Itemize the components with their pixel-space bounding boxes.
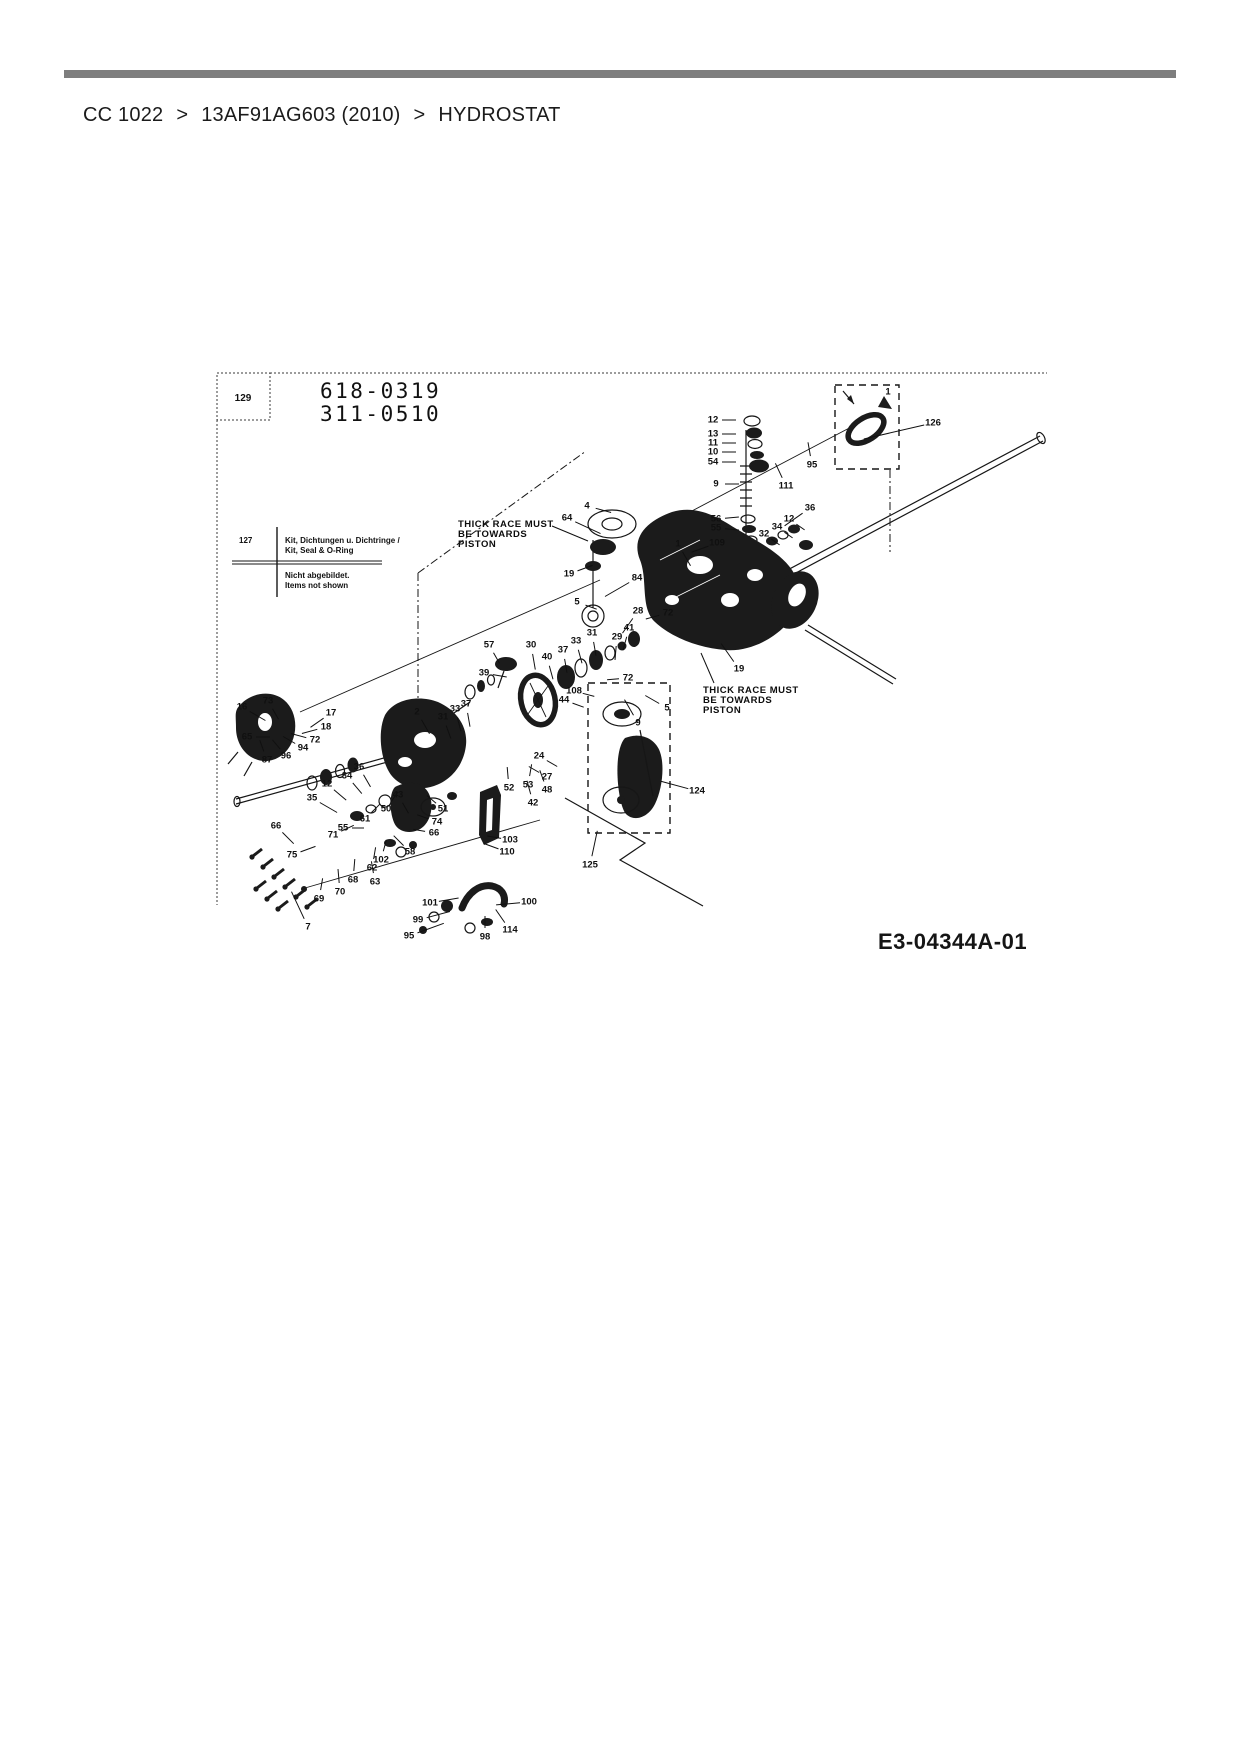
part-label-98: 98 xyxy=(480,932,491,943)
part-label-72: 72 xyxy=(623,673,634,684)
bolt-head xyxy=(253,886,258,891)
part-label-43: 43 xyxy=(393,790,404,801)
leader-line-44 xyxy=(573,703,584,707)
part-label-30: 30 xyxy=(526,640,537,651)
leader-line-39 xyxy=(493,675,507,677)
part-label-17: 17 xyxy=(326,708,337,719)
part-label-61: 61 xyxy=(360,814,371,825)
leader-line-37 xyxy=(468,713,470,727)
kit-note-id: 127 xyxy=(239,536,253,545)
part-label-48: 48 xyxy=(542,785,553,796)
bolt-head xyxy=(249,854,254,859)
part-label-2: 2 xyxy=(414,707,419,718)
part-label-52: 52 xyxy=(504,783,515,794)
part-label-110: 110 xyxy=(499,847,514,858)
part-label-44: 44 xyxy=(559,695,570,706)
part-label-58: 58 xyxy=(405,847,416,858)
part-label-101: 101 xyxy=(422,898,439,909)
kit-note: 127 Kit, Dichtungen u. Dichtringe / Kit,… xyxy=(232,527,400,597)
part-label-37: 37 xyxy=(461,699,472,710)
part-label-12: 12 xyxy=(708,415,719,426)
drawing-code: E3-04344A-01 xyxy=(878,929,1027,954)
leader-line-75 xyxy=(301,846,316,852)
bolt-head xyxy=(260,864,265,869)
part-label-5: 5 xyxy=(574,597,580,608)
exploded-parts-diagram: 129 618-0319 311-0510 127 Kit, Dichtunge… xyxy=(0,0,1240,1754)
bolt-head xyxy=(271,874,276,879)
part-label-94: 94 xyxy=(298,743,309,754)
part-label-33: 33 xyxy=(450,704,461,715)
leader-line-110 xyxy=(484,843,499,849)
exploded-view-art xyxy=(228,391,1047,934)
part-label-16: 16 xyxy=(237,702,248,713)
part-label-28: 28 xyxy=(633,606,644,617)
part-label-96: 96 xyxy=(281,751,292,762)
leader-line-24 xyxy=(547,761,557,767)
part-label-95: 95 xyxy=(404,931,415,942)
leader-line-124 xyxy=(661,781,688,788)
part-label-24: 24 xyxy=(534,751,545,762)
bolt-head xyxy=(275,906,280,911)
part-label-103: 103 xyxy=(502,835,518,846)
part-label-34: 34 xyxy=(342,771,353,782)
leader-line-56 xyxy=(725,517,739,518)
part-label-7: 7 xyxy=(305,922,310,933)
bolt-icon xyxy=(279,901,288,908)
part-number-line-1: 618-0319 xyxy=(320,379,441,403)
part-label-32: 32 xyxy=(759,529,770,540)
bolt-head xyxy=(264,896,269,901)
part-label-51: 51 xyxy=(438,804,449,815)
part-label-84: 84 xyxy=(632,573,643,584)
part-label-100: 100 xyxy=(521,897,537,908)
bolt-icon xyxy=(275,869,284,876)
leader-line-70 xyxy=(338,869,339,883)
part-label-124: 124 xyxy=(689,786,706,797)
part-label-63: 63 xyxy=(370,877,381,888)
part-label-111: 111 xyxy=(779,481,795,492)
part-label-54: 54 xyxy=(708,457,719,468)
thick-race-annotation-2: THICK RACE MUST BE TOWARDS PISTON xyxy=(701,653,802,716)
part-label-39: 39 xyxy=(479,668,490,679)
part-label-75: 75 xyxy=(287,850,298,861)
bolt-icon xyxy=(268,891,277,898)
bolt-icon xyxy=(257,881,266,888)
leader-line-68 xyxy=(354,859,355,871)
diagram-part-numbers: 618-0319 311-0510 xyxy=(320,379,441,426)
leader-line-100 xyxy=(496,903,520,905)
leader-line-66 xyxy=(282,832,293,843)
part-label-9: 9 xyxy=(635,718,640,729)
part-label-72: 72 xyxy=(663,608,674,619)
part-label-41: 41 xyxy=(624,623,635,634)
svg-text:THICK RACE MUST BE TOWAR: THICK RACE MUST BE TOWARDS PISTON xyxy=(703,685,802,716)
part-label-69: 69 xyxy=(314,894,325,905)
part-label-12: 12 xyxy=(784,514,795,525)
part-label-66: 66 xyxy=(429,828,440,839)
part-label-65: 65 xyxy=(242,732,253,743)
leader-line-125 xyxy=(592,831,597,856)
part-label-18: 18 xyxy=(321,722,332,733)
leader-line-33 xyxy=(578,650,582,664)
leader-line-12 xyxy=(334,790,346,800)
part-label-19: 19 xyxy=(564,569,575,580)
bolt-icon xyxy=(264,859,273,866)
part-label-9: 9 xyxy=(713,479,718,490)
part-label-55: 55 xyxy=(711,523,722,534)
part-label-31: 31 xyxy=(438,712,449,723)
part-label-37: 37 xyxy=(558,645,569,656)
part-label-68: 68 xyxy=(348,875,359,886)
part-label-50: 50 xyxy=(381,804,392,815)
part-label-126: 126 xyxy=(925,418,941,429)
part-label-95: 95 xyxy=(807,460,818,471)
part-label-99: 99 xyxy=(413,915,424,926)
part-label-33: 33 xyxy=(571,636,582,647)
bolt-icon xyxy=(286,879,295,886)
part-label-70: 70 xyxy=(335,887,346,898)
kit-note-line: Kit, Dichtungen u. Dichtringe / xyxy=(285,536,400,545)
kit-note-line: Items not shown xyxy=(285,581,348,590)
part-label-19: 19 xyxy=(734,664,745,675)
parts-catalog-page: { "page": { "background": "#ffffff", "di… xyxy=(0,0,1240,1754)
part-label-57: 57 xyxy=(484,640,495,651)
svg-text:THICK RACE MUST BE TOWAR: THICK RACE MUST BE TOWARDS PISTON xyxy=(458,519,557,550)
part-label-4: 4 xyxy=(584,501,590,512)
leader-line-108 xyxy=(583,693,595,696)
leader-line-126 xyxy=(864,425,924,439)
part-label-1: 1 xyxy=(885,387,891,398)
leader-line-30 xyxy=(533,654,536,670)
leader-line-34 xyxy=(784,532,792,538)
part-label-73: 73 xyxy=(263,696,274,707)
bolt-row xyxy=(249,849,317,912)
diagram-ref-number: 129 xyxy=(235,393,252,404)
part-label-125: 125 xyxy=(582,860,599,871)
leader-line-35 xyxy=(320,803,337,813)
leader-line-72 xyxy=(607,679,619,680)
leader-line-36 xyxy=(364,775,371,787)
part-label-36: 36 xyxy=(805,503,816,514)
part-label-29: 29 xyxy=(612,632,623,643)
part-label-5: 5 xyxy=(664,703,670,714)
part-label-72: 72 xyxy=(310,735,321,746)
bolt-head xyxy=(282,884,287,889)
leader-line-34 xyxy=(353,783,362,794)
leader-line-114 xyxy=(496,910,505,923)
leader-line-53 xyxy=(530,764,532,776)
part-label-12: 12 xyxy=(322,779,333,790)
part-labels-layer: 1213111054956559511112613612343210916441… xyxy=(237,387,941,943)
part-label-109: 109 xyxy=(709,538,725,549)
leader-line-84 xyxy=(605,583,629,597)
seal-detail-box xyxy=(835,385,899,469)
leader-line-29 xyxy=(615,646,616,660)
part-label-87: 87 xyxy=(262,755,273,766)
leader-line-40 xyxy=(549,666,553,680)
part-label-31: 31 xyxy=(587,628,598,639)
part-label-42: 42 xyxy=(528,798,539,809)
leader-line-18 xyxy=(302,729,317,733)
part-label-66: 66 xyxy=(271,821,282,832)
part-label-74: 74 xyxy=(432,817,443,828)
part-label-40: 40 xyxy=(542,652,553,663)
leader-line-69 xyxy=(321,878,323,890)
kit-note-line: Kit, Seal & O-Ring xyxy=(285,546,354,555)
kit-note-line: Nicht abgebildet. xyxy=(285,571,349,580)
part-label-55: 55 xyxy=(338,823,349,834)
part-label-34: 34 xyxy=(772,522,783,533)
part-label-114: 114 xyxy=(502,925,518,936)
bolt-icon xyxy=(253,849,262,856)
leader-line-5 xyxy=(645,696,659,704)
part-label-1: 1 xyxy=(675,539,681,550)
thick-race-annotation-1: THICK RACE MUST BE TOWARDS PISTON xyxy=(458,519,588,550)
part-label-64: 64 xyxy=(562,513,573,524)
part-label-35: 35 xyxy=(307,793,318,804)
part-label-36: 36 xyxy=(354,762,365,773)
bolt-head xyxy=(304,904,309,909)
leader-line-52 xyxy=(507,767,508,779)
part-number-line-2: 311-0510 xyxy=(320,402,441,426)
